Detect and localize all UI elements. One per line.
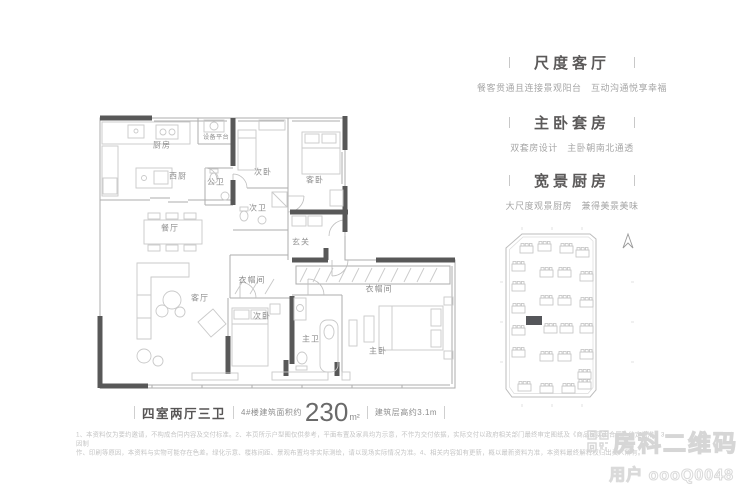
feature-title: 主卧套房	[534, 112, 610, 133]
room-label-master-bath: 主卫	[302, 334, 320, 345]
disclaimer-line-1: 1、本资料仅为要约邀请，不构成合同内容及交付标准。2、本页所示户型图仅供参考，平…	[76, 431, 675, 449]
site-ticks	[500, 227, 634, 407]
room-label-dining-room: 餐厅	[161, 223, 179, 234]
room-label-public-bath: 公卫	[207, 177, 225, 188]
room-label-master-bedroom: 主卧	[369, 346, 387, 357]
area-value: 230	[305, 399, 348, 425]
walls-thin	[100, 118, 455, 388]
site-buildings	[512, 242, 593, 394]
room-label-living-room: 客厅	[191, 293, 209, 304]
room-label-bath-2: 次卫	[249, 203, 267, 214]
divider-bar	[634, 117, 635, 128]
divider-bar	[509, 57, 510, 68]
qr-icon	[587, 430, 609, 452]
room-label-bedroom-2: 次卧	[254, 167, 272, 178]
feature-subtitle: 餐客贯通且连接景观阳台 互动沟通悦享幸福	[468, 81, 676, 94]
feature-subtitle: 大尺度观景厨房 兼得美景美味	[468, 199, 676, 212]
watermark-title: 房科二维码	[613, 424, 738, 458]
feature-master-suite: 主卧套房 双套房设计 主卧朝南北通透	[468, 112, 676, 154]
siteplan	[492, 222, 642, 412]
area-prefix: 4#楼建筑面积约	[241, 407, 302, 418]
room-label-cloakroom-1: 衣帽间	[239, 275, 266, 286]
caption-bar: 四室两厅三卫 4#楼建筑面积约 230 m² 建筑层高约3.1m	[134, 398, 445, 426]
divider-bar	[509, 175, 510, 186]
feature-title: 尺度客厅	[534, 52, 610, 73]
highlighted-building	[526, 316, 542, 325]
caption-divider	[233, 406, 234, 419]
floorplan-drawing	[92, 108, 464, 396]
divider-bar	[634, 57, 635, 68]
north-arrow-icon	[623, 234, 633, 248]
feature-subtitle: 双套房设计 主卧朝南北通透	[468, 141, 676, 154]
caption-divider	[367, 406, 368, 419]
watermark-user: 用户 oooQ0048	[587, 461, 738, 485]
feature-living-room: 尺度客厅 餐客贯通且连接景观阳台 互动沟通悦享幸福	[468, 52, 676, 94]
floorplan-poster: 设备平台 厨房 西厨 公卫 次卧 客卧 次卫 餐厅 玄关 客厅 衣帽间 次卧 主…	[0, 0, 740, 497]
watermark: 房科二维码 用户 oooQ0048	[587, 424, 738, 485]
area-unit: m²	[349, 412, 360, 425]
feature-kitchen: 宽景厨房 大尺度观景厨房 兼得美景美味	[468, 170, 676, 212]
divider-bar	[509, 117, 510, 128]
layout-type: 四室两厅三卫	[142, 403, 226, 422]
height-note: 建筑层高约3.1m	[375, 407, 437, 418]
feature-title: 宽景厨房	[534, 170, 610, 191]
room-label-foyer: 玄关	[292, 237, 310, 248]
room-label-equipment-platform: 设备平台	[203, 131, 229, 140]
room-label-kitchen: 厨房	[153, 140, 171, 151]
divider-bar	[634, 175, 635, 186]
caption-divider	[134, 406, 135, 419]
disclaimer-line-2: 作、印刷等原因，本资料与实物可能存在色差。绿化示意、楼栋间距、景观布置均非实际测…	[76, 449, 675, 458]
walls-thick	[100, 116, 455, 388]
caption-divider	[444, 406, 445, 419]
furniture	[102, 120, 453, 380]
area-group: 4#楼建筑面积约 230 m²	[241, 399, 360, 425]
room-label-west-kitchen: 西厨	[169, 171, 187, 182]
room-label-cloakroom-2: 衣帽间	[366, 284, 393, 295]
room-label-bedroom-3: 次卧	[253, 311, 271, 322]
room-label-guest-bedroom: 客卧	[306, 175, 324, 186]
disclaimer: 1、本资料仅为要约邀请，不构成合同内容及交付标准。2、本页所示户型图仅供参考，平…	[76, 431, 675, 457]
siteplan-drawing	[492, 222, 642, 412]
floorplan: 设备平台 厨房 西厨 公卫 次卧 客卧 次卫 餐厅 玄关 客厅 衣帽间 次卧 主…	[92, 108, 464, 396]
